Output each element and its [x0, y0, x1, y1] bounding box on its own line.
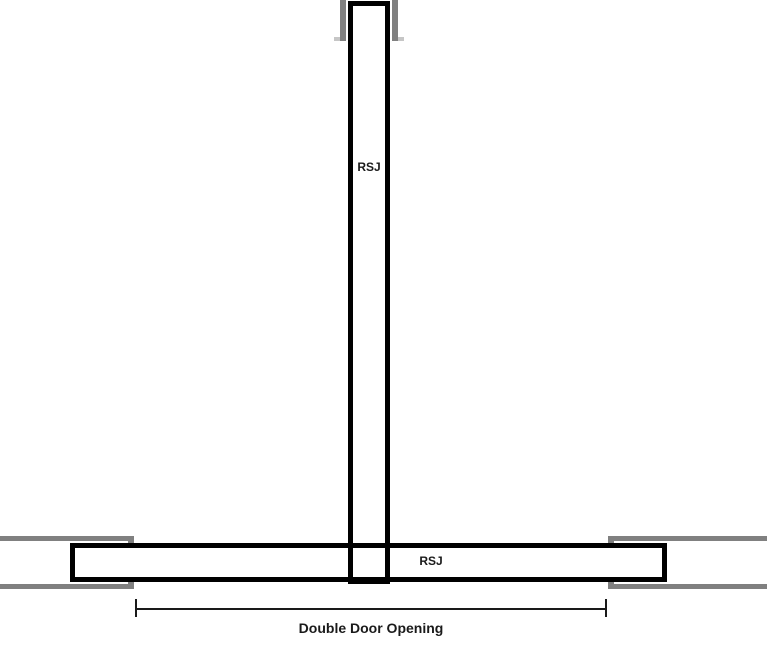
bottom-right-wall-bottom-edge	[608, 584, 767, 589]
vertical-beam-label: RSJ	[348, 161, 390, 173]
dimension-tick-left	[135, 599, 137, 617]
dimension-label: Double Door Opening	[135, 621, 607, 636]
vertical-rsj-beam	[348, 1, 390, 584]
bottom-right-wall-top-edge	[608, 536, 767, 541]
top-wall-left-end-cap	[334, 37, 340, 41]
dimension-line	[136, 608, 606, 610]
bottom-left-wall-bottom-edge	[0, 584, 134, 589]
dimension-tick-right	[605, 599, 607, 617]
bottom-left-wall-top-edge	[0, 536, 134, 541]
diagram-canvas: RSJ RSJ Double Door Opening	[0, 0, 767, 646]
top-wall-right-end-cap	[398, 37, 404, 41]
horizontal-beam-label: RSJ	[400, 555, 462, 567]
top-wall-right-edge	[392, 0, 398, 41]
top-wall-left-edge	[340, 0, 346, 41]
